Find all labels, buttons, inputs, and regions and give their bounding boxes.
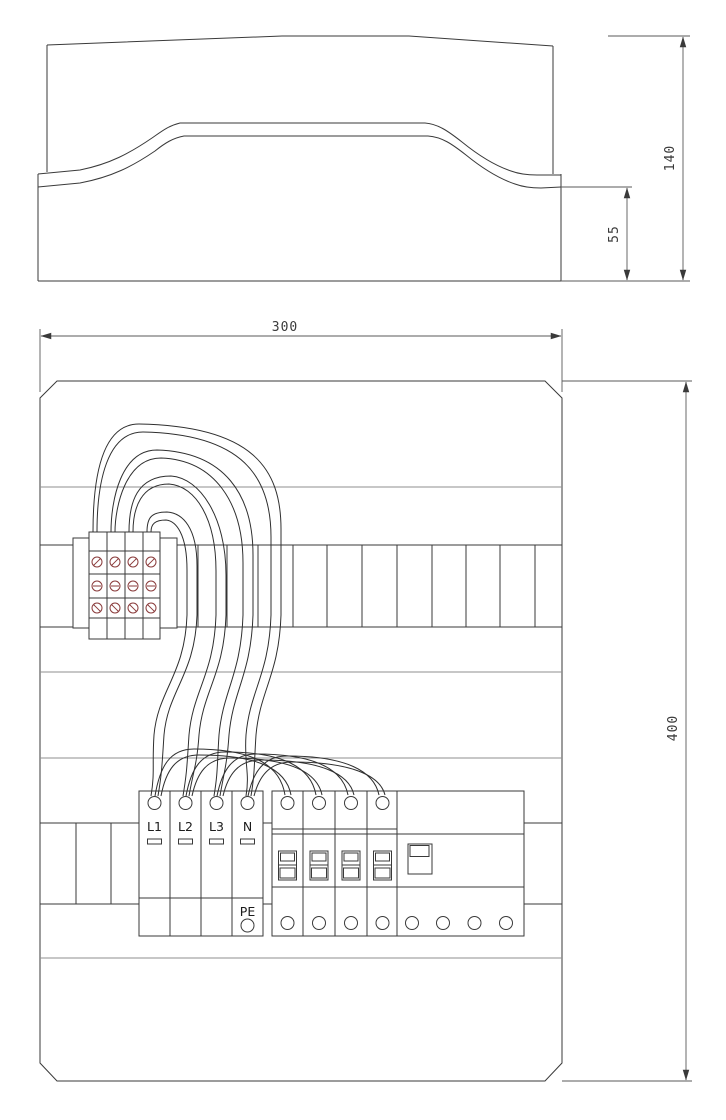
breaker-block <box>272 791 524 936</box>
dim300-label: 300 <box>272 320 298 335</box>
terminal-block-flange-right <box>160 538 177 628</box>
front-view: 300 400 <box>40 320 692 1081</box>
lid-top-edge <box>47 36 553 46</box>
dim140-label: 140 <box>663 145 678 171</box>
drawing-canvas: 55 140 300 400 <box>0 0 726 1120</box>
spd-label-n: N <box>243 819 252 834</box>
spd-label-l2: L2 <box>178 819 193 834</box>
dim55-label: 55 <box>607 225 622 243</box>
pe-label: PE <box>240 904 256 919</box>
base-profile <box>38 174 561 281</box>
step-profile-lower <box>38 136 561 188</box>
enclosure-drawing: 55 140 300 400 <box>0 0 726 1120</box>
terminal-block-flange-left <box>73 538 89 628</box>
cover-step-profile <box>38 123 561 188</box>
spd-label-l3: L3 <box>209 819 224 834</box>
spd-label-l1: L1 <box>147 819 162 834</box>
spd-block: L1 L2 L3 N PE <box>139 791 263 936</box>
jumper-wires <box>155 749 385 796</box>
dimension-400: 400 <box>562 381 692 1081</box>
rail-upper-segments <box>198 545 535 627</box>
dimension-55: 55 <box>561 187 690 281</box>
terminal-block <box>73 532 177 639</box>
dim400-label: 400 <box>666 715 681 741</box>
rail-lower-segments <box>76 823 111 904</box>
side-view: 55 140 <box>38 36 690 281</box>
